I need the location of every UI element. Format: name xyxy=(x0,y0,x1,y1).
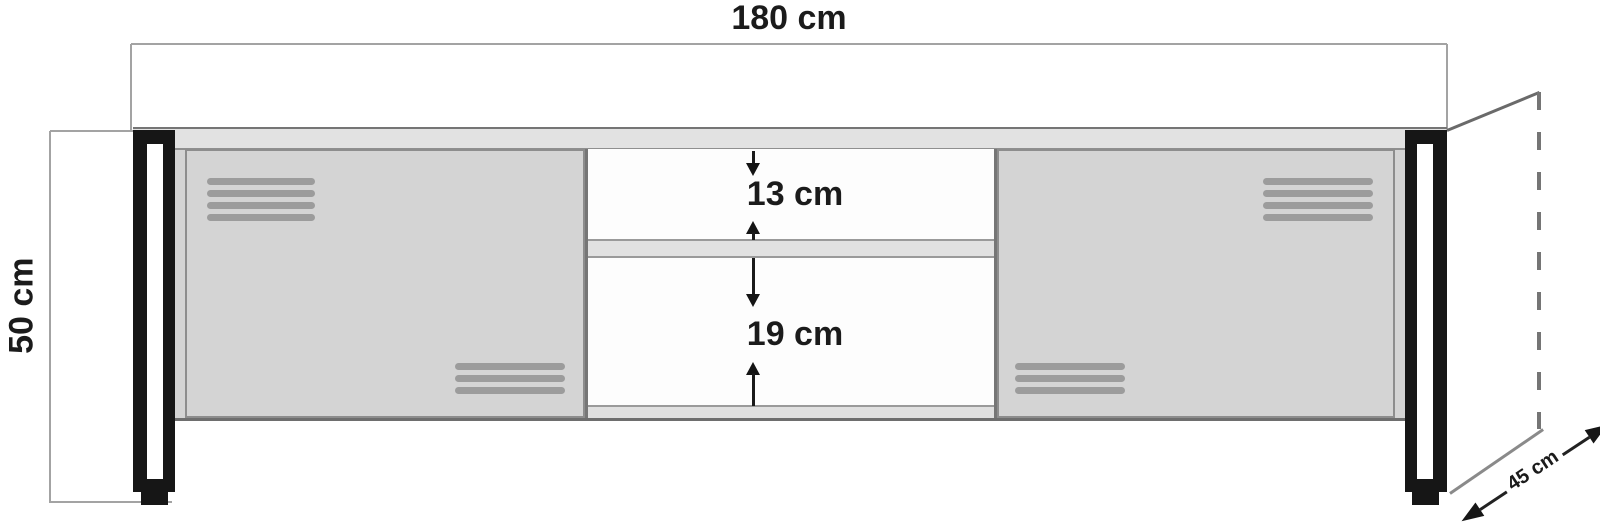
height-dimension-line xyxy=(49,131,51,503)
upper-opening-arrow-bottom-line xyxy=(752,232,755,240)
middle-shelf xyxy=(588,239,994,258)
vent-slat xyxy=(1263,178,1373,185)
vent-slat xyxy=(207,178,315,185)
left-leg-slot xyxy=(147,144,163,479)
width-extension-line-right xyxy=(1446,44,1448,130)
vent-slat xyxy=(1263,202,1373,209)
left-door-top-vent-grille xyxy=(207,178,315,221)
vent-slat xyxy=(455,387,565,394)
cabinet-bottom-edge xyxy=(133,418,1447,421)
width-dimension-line xyxy=(131,43,1447,45)
vent-slat xyxy=(207,190,315,197)
vent-slat xyxy=(1015,363,1125,370)
depth-dimension-line-right xyxy=(1561,436,1589,456)
vent-slat xyxy=(1015,375,1125,382)
left-leg-frame xyxy=(133,130,175,492)
width-dimension-label: 180 cm xyxy=(589,0,989,37)
right-leg-foot xyxy=(1412,492,1439,505)
depth-dimension-line-left xyxy=(1479,490,1507,510)
lower-opening-dimension-label: 19 cm xyxy=(700,316,890,353)
cabinet-top-panel xyxy=(133,127,1447,150)
vent-slat xyxy=(207,214,315,221)
right-leg-slot xyxy=(1417,144,1433,479)
furniture-dimension-diagram: 180 cm 50 cm 13 cm 19 cm xyxy=(0,0,1600,525)
left-door-bottom-vent-grille xyxy=(455,363,565,394)
vent-slat xyxy=(207,202,315,209)
vent-slat xyxy=(1263,190,1373,197)
depth-dashed-rear-edge xyxy=(1537,92,1541,429)
height-extension-line-top xyxy=(50,130,134,132)
vent-slat xyxy=(455,375,565,382)
right-door-bottom-vent-grille xyxy=(1015,363,1125,394)
vent-slat xyxy=(455,363,565,370)
depth-top-edge-line xyxy=(1446,91,1540,132)
upper-opening-dimension-label: 13 cm xyxy=(700,176,890,213)
left-leg-foot xyxy=(141,492,168,505)
lower-opening-arrow-down-icon xyxy=(746,294,760,307)
lower-opening-arrow-bottom-line xyxy=(752,373,755,406)
vent-slat xyxy=(1263,214,1373,221)
depth-dimension: 45 cm xyxy=(1455,415,1600,525)
height-dimension-label: 50 cm xyxy=(3,225,40,387)
right-leg-frame xyxy=(1405,130,1447,492)
vent-slat xyxy=(1015,387,1125,394)
lower-opening-arrow-top-line xyxy=(752,258,755,296)
right-door-top-vent-grille xyxy=(1263,178,1373,221)
width-extension-line-left xyxy=(130,44,132,130)
